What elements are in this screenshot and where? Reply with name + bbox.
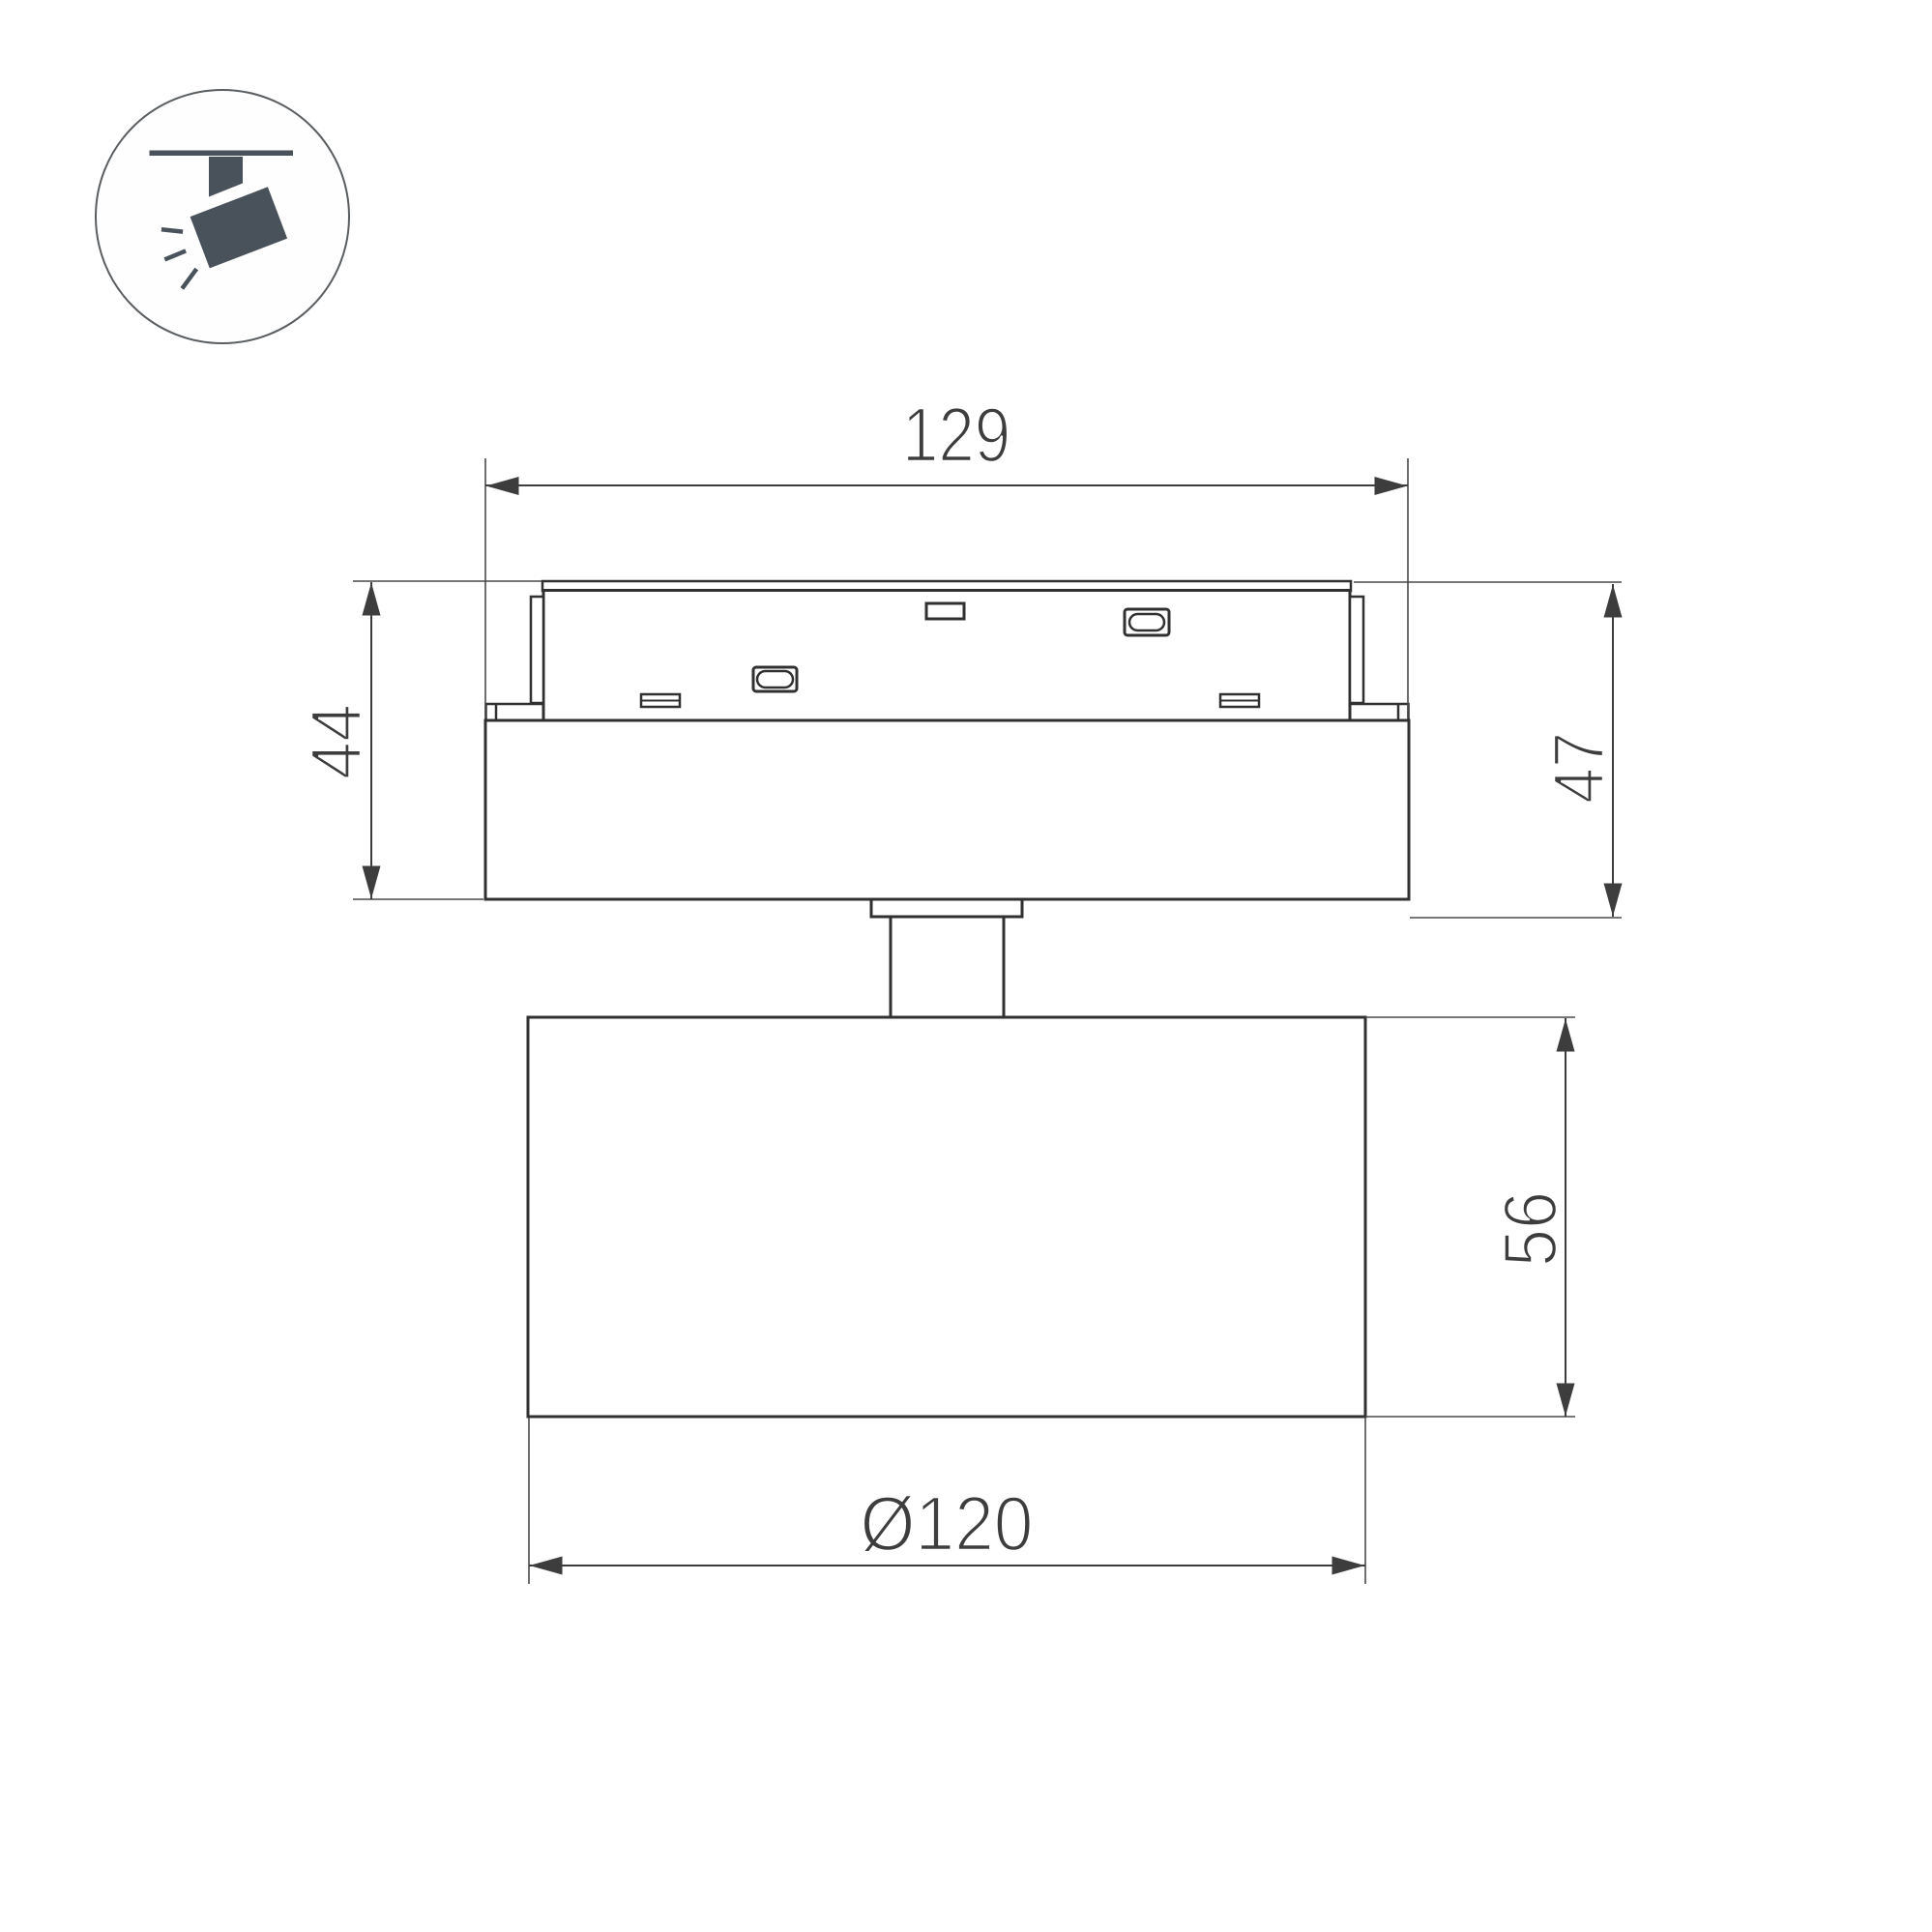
svg-text:56: 56 (1488, 1191, 1572, 1267)
svg-text:Ø120: Ø120 (860, 1481, 1033, 1567)
svg-text:47: 47 (1538, 732, 1619, 804)
svg-text:129: 129 (902, 391, 1010, 478)
svg-text:44: 44 (297, 704, 376, 779)
